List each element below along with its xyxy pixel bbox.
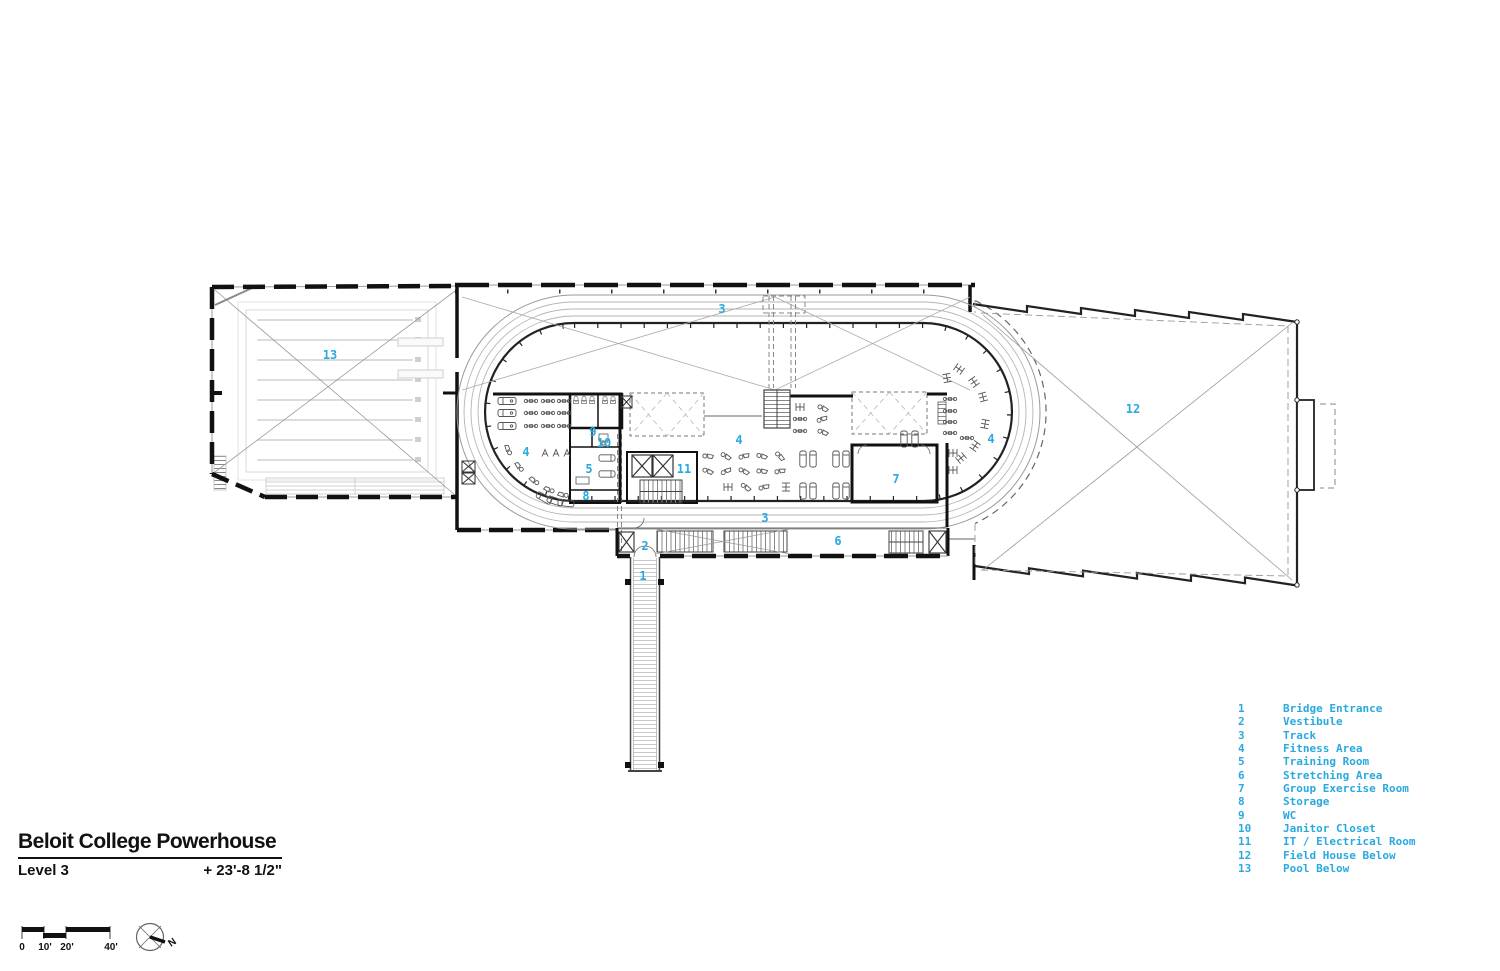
- legend-label: Janitor Closet: [1283, 822, 1376, 835]
- legend-label: Pool Below: [1283, 862, 1349, 875]
- legend-item: 12Field House Below: [1238, 849, 1415, 862]
- level-label: Level 3: [18, 862, 69, 879]
- label-fitness-center: 4: [735, 433, 742, 447]
- elevation-label: + 23'-8 1/2": [203, 862, 282, 879]
- running-track: [457, 295, 1046, 529]
- field-house-dashed-inner: [975, 300, 1288, 576]
- legend-num: 13: [1238, 862, 1283, 875]
- legend-item: 2Vestibule: [1238, 715, 1415, 728]
- project-title: Beloit College Powerhouse: [18, 830, 282, 859]
- north-arrow: N: [137, 924, 179, 951]
- legend-label: Stretching Area: [1283, 769, 1382, 782]
- legend-item: 13Pool Below: [1238, 862, 1415, 875]
- label-janitor-closet: 10: [597, 436, 611, 450]
- wc-fixtures: [574, 396, 616, 403]
- escalator-east: [724, 531, 787, 552]
- legend-label: Field House Below: [1283, 849, 1396, 862]
- floor-plan-sheet: { "title_block": { "project": "Beloit Co…: [0, 0, 1500, 971]
- legend-num: 6: [1238, 769, 1283, 782]
- legend-item: 3Track: [1238, 729, 1415, 742]
- field-house: [973, 300, 1335, 587]
- structure-x-lines: [462, 297, 970, 390]
- legend-item: 11IT / Electrical Room: [1238, 835, 1415, 848]
- legend-item: 9WC: [1238, 809, 1415, 822]
- field-house-east-bay: [1297, 400, 1314, 490]
- label-group-exercise: 7: [892, 472, 899, 486]
- legend-num: 5: [1238, 755, 1283, 768]
- label-track-bottom: 3: [761, 511, 768, 525]
- training-room-furniture: [576, 455, 615, 484]
- scale-label-20: 20': [60, 942, 74, 953]
- bridge-deck: [633, 558, 657, 771]
- legend-item: 5Training Room: [1238, 755, 1415, 768]
- label-field-house: 12: [1126, 402, 1140, 416]
- legend-label: IT / Electrical Room: [1283, 835, 1415, 848]
- room-legend: 1Bridge Entrance 2Vestibule 3Track 4Fitn…: [1238, 702, 1415, 875]
- legend-item: 4Fitness Area: [1238, 742, 1415, 755]
- legend-num: 11: [1238, 835, 1283, 848]
- legend-num: 8: [1238, 795, 1283, 808]
- legend-label: Fitness Area: [1283, 742, 1362, 755]
- skylight-opening-west: [630, 393, 704, 436]
- field-house-south-sawtooth: [975, 566, 1297, 586]
- north-needle: [150, 937, 165, 942]
- legend-label: WC: [1283, 809, 1296, 822]
- legend-item: 7Group Exercise Room: [1238, 782, 1415, 795]
- escalator-west: [657, 531, 713, 552]
- legend-num: 1: [1238, 702, 1283, 715]
- fitness-equipment: [498, 363, 990, 507]
- legend-label: Storage: [1283, 795, 1329, 808]
- scale-label-0: 0: [19, 942, 25, 953]
- scale-bar: 0 10' 20' 40': [19, 926, 118, 953]
- legend-num: 2: [1238, 715, 1283, 728]
- legend-num: 7: [1238, 782, 1283, 795]
- label-bridge-entrance: 1: [639, 569, 646, 583]
- entry-strip: [617, 518, 948, 557]
- legend-item: 6Stretching Area: [1238, 769, 1415, 782]
- legend-label: Track: [1283, 729, 1316, 742]
- elevator-west-pair: [462, 461, 475, 484]
- legend-item: 1Bridge Entrance: [1238, 702, 1415, 715]
- legend-num: 4: [1238, 742, 1283, 755]
- title-block: Beloit College Powerhouse Level 3 + 23'-…: [18, 830, 282, 879]
- infield: [462, 296, 970, 556]
- stretching-elevator: [929, 531, 946, 553]
- label-pool-below: 13: [323, 348, 337, 362]
- legend-num: 9: [1238, 809, 1283, 822]
- label-it-electrical: 11: [677, 462, 691, 476]
- legend-label: Training Room: [1283, 755, 1369, 768]
- label-vestibule: 2: [641, 539, 648, 553]
- skylight-opening-east: [852, 392, 927, 434]
- legend-item: 8Storage: [1238, 795, 1415, 808]
- legend-label: Group Exercise Room: [1283, 782, 1409, 795]
- legend-num: 10: [1238, 822, 1283, 835]
- legend-label: Vestibule: [1283, 715, 1343, 728]
- label-fitness-west: 4: [522, 445, 529, 459]
- legend-num: 12: [1238, 849, 1283, 862]
- scale-label-10: 10': [38, 942, 52, 953]
- label-fitness-east: 4: [987, 432, 994, 446]
- scale-label-40: 40': [104, 942, 118, 953]
- pool-outline: [246, 310, 428, 472]
- label-training-room: 5: [585, 462, 592, 476]
- pool-wing: [212, 286, 457, 497]
- label-storage: 8: [582, 489, 589, 503]
- bridge: [625, 557, 664, 772]
- pool-stair: [214, 456, 226, 490]
- legend-num: 3: [1238, 729, 1283, 742]
- open-to-below-x-fieldhouse: [983, 315, 1292, 580]
- north-label: N: [166, 936, 178, 949]
- legend-label: Bridge Entrance: [1283, 702, 1382, 715]
- elevator-core-pair: [632, 455, 673, 477]
- label-wc: 9: [589, 425, 596, 439]
- label-track-top: 3: [718, 302, 725, 316]
- label-stretching-area: 6: [834, 534, 841, 548]
- legend-item: 10Janitor Closet: [1238, 822, 1415, 835]
